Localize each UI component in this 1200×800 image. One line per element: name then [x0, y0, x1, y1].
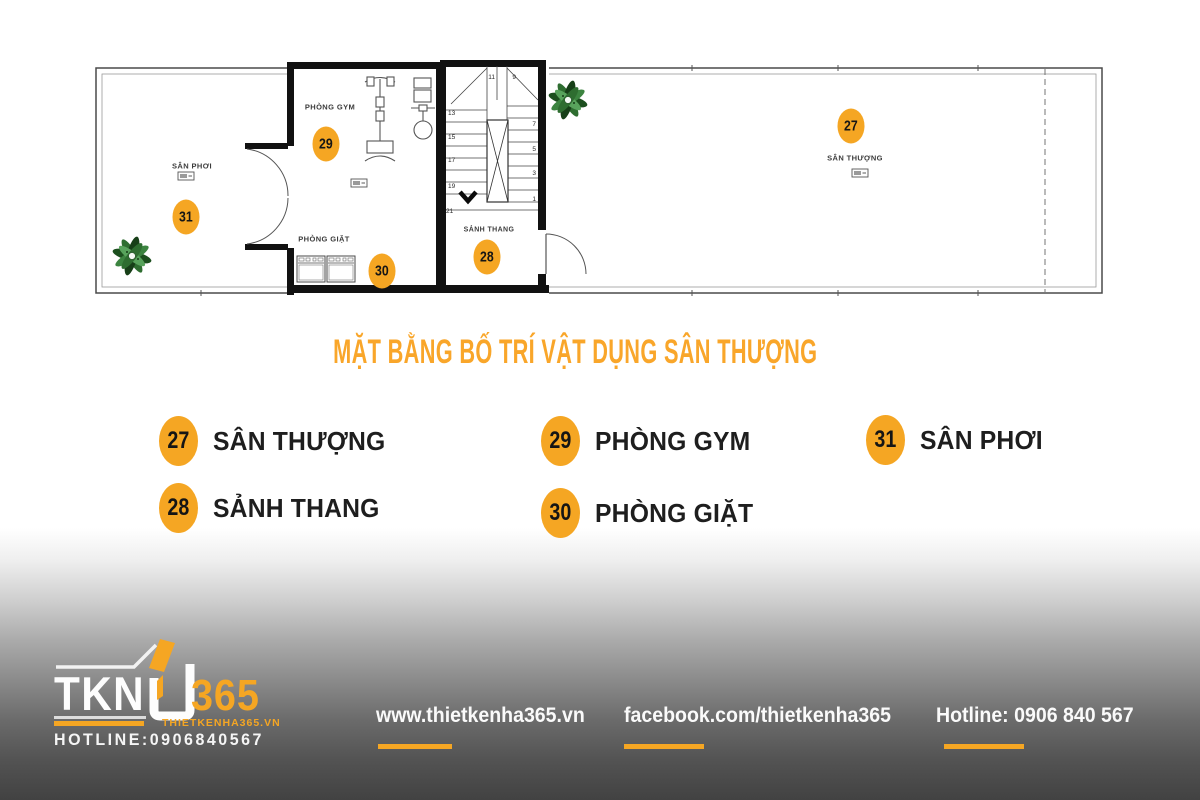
plan-border: [96, 65, 1102, 296]
legend-badge-28: 28: [159, 483, 198, 533]
svg-text:11: 11: [488, 74, 495, 81]
room-label-san-thuong: SÂN THƯỢNG: [827, 154, 883, 163]
infographic-page: 11 9 13 15 17 19 21 7 5 3 1: [0, 0, 1200, 800]
logo-roof-line: [56, 645, 156, 667]
svg-text:1: 1: [532, 196, 536, 203]
logo-divider-orange: [54, 721, 144, 726]
legend-badge-30: 30: [541, 488, 580, 538]
legend-label-28: SẢNH THANG: [213, 493, 380, 524]
room-label-san-phoi: SÂN PHƠI: [172, 162, 212, 171]
legend-item-30: 30 PHÒNG GIẶT: [541, 488, 762, 538]
svg-text:19: 19: [448, 183, 456, 190]
svg-text:9: 9: [512, 74, 516, 81]
legend-item-27: 27 SÂN THƯỢNG: [159, 416, 395, 466]
page-title: MẶT BẰNG BỐ TRÍ VẬT DỤNG SÂN THƯỢNG: [333, 333, 817, 372]
room-label-phong-gym: PHÒNG GYM: [305, 103, 355, 112]
footer-underline: [944, 744, 1024, 749]
svg-text:3: 3: [532, 170, 536, 177]
plan-badge-29: 29: [313, 127, 340, 162]
page-title-wrap: MẶT BẰNG BỐ TRÍ VẬT DỤNG SÂN THƯỢNG: [0, 333, 1150, 372]
floor-plan-drawing: 11 9 13 15 17 19 21 7 5 3 1: [95, 60, 1105, 300]
svg-text:13: 13: [448, 110, 456, 117]
svg-text:17: 17: [448, 157, 456, 164]
footer-underline: [624, 744, 704, 749]
footer-underline: [378, 744, 452, 749]
room-label-phong-giat: PHÒNG GIẶT: [298, 235, 350, 244]
plan-badge-30: 30: [369, 254, 396, 289]
plan-badge-28: 28: [474, 240, 501, 275]
footer-link-facebook: facebook.com/thietkenha365: [624, 704, 891, 728]
svg-text:15: 15: [448, 134, 456, 141]
logo-text-tkn: TKN: [54, 671, 145, 717]
legend-label-27: SÂN THƯỢNG: [213, 426, 385, 457]
legend-badge-27: 27: [159, 416, 198, 466]
legend-badge-29: 29: [541, 416, 580, 466]
logo-divider-white: [54, 716, 146, 719]
svg-text:7: 7: [532, 121, 536, 128]
legend-item-31: 31 SÂN PHƠI: [866, 415, 1049, 465]
footer-link-hotline: Hotline: 0906 840 567: [936, 704, 1134, 728]
logo-hotline: HOTLINE:0906840567: [54, 731, 264, 750]
legend-label-31: SÂN PHƠI: [920, 425, 1043, 456]
svg-text:5: 5: [532, 146, 536, 153]
legend-item-28: 28 SẢNH THANG: [159, 483, 388, 533]
svg-text:21: 21: [446, 208, 454, 215]
plan-badge-27: 27: [838, 109, 865, 144]
logo-website: THIETKENHA365.VN: [162, 717, 281, 729]
logo-text-365: 365: [191, 674, 260, 718]
room-label-sanh-thang: SẢNH THANG: [464, 227, 515, 234]
logo-chimney: [149, 639, 175, 672]
legend-item-29: 29 PHÒNG GYM: [541, 416, 759, 466]
plan-badge-31: 31: [173, 200, 200, 235]
footer-link-website: www.thietkenha365.vn: [376, 704, 585, 728]
legend-badge-31: 31: [866, 415, 905, 465]
legend-label-30: PHÒNG GIẶT: [595, 498, 753, 529]
legend-label-29: PHÒNG GYM: [595, 426, 750, 457]
